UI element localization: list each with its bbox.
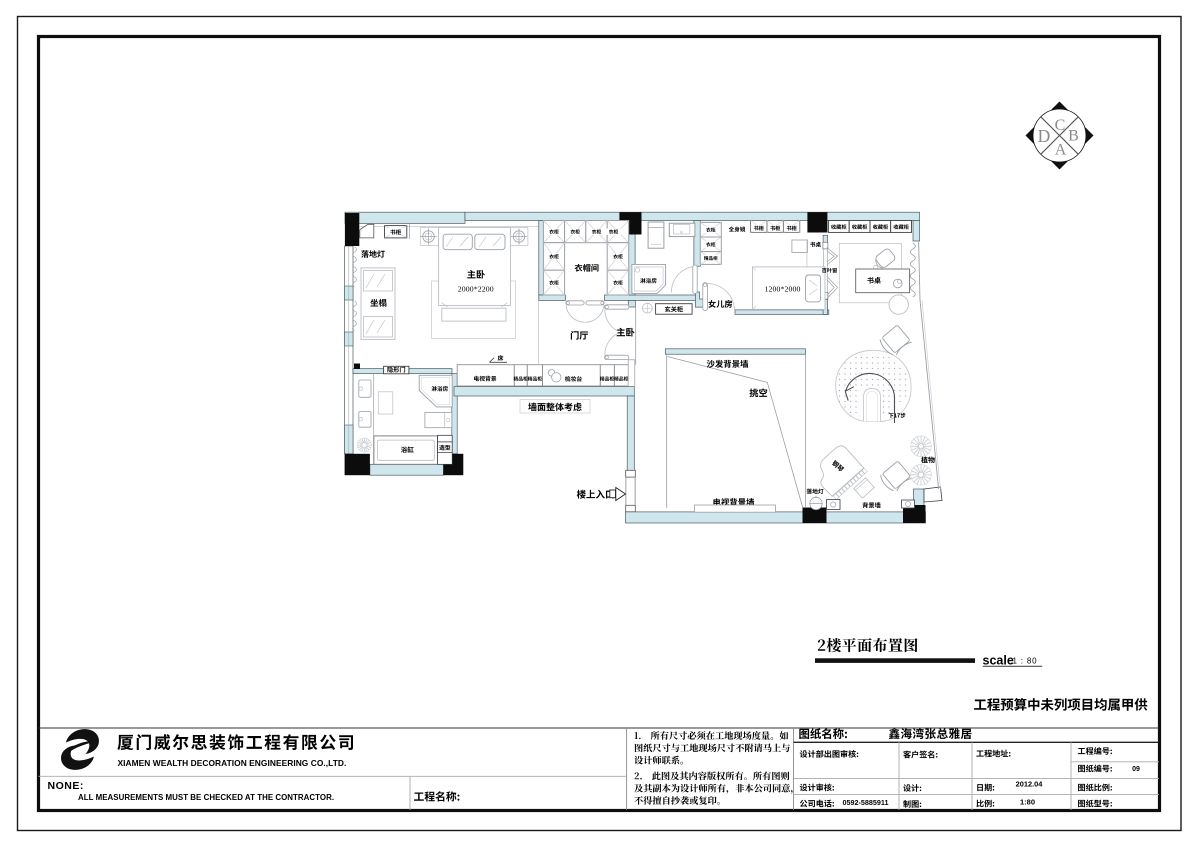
- svg-text:2012.04: 2012.04: [1016, 780, 1044, 789]
- svg-text:A: A: [1055, 142, 1067, 159]
- svg-text:ALL MEASUREMENTS MUST BE CHECK: ALL MEASUREMENTS MUST BE CHECKED AT THE …: [78, 793, 334, 802]
- svg-text:B: B: [1068, 128, 1079, 145]
- svg-text:09: 09: [1132, 766, 1140, 773]
- svg-text:scale: scale: [983, 654, 1014, 668]
- svg-text:0592-5885911: 0592-5885911: [843, 798, 889, 807]
- svg-text:1200*2000: 1200*2000: [765, 285, 801, 294]
- svg-text:D: D: [1038, 126, 1051, 146]
- svg-text:C: C: [1055, 117, 1066, 134]
- svg-text:2000*2200: 2000*2200: [458, 284, 494, 293]
- svg-text:1:80: 1:80: [1020, 798, 1035, 807]
- svg-text:XIAMEN WEALTH DECORATION ENGIN: XIAMEN WEALTH DECORATION ENGINEERING CO.…: [118, 758, 347, 768]
- svg-text:NONE:: NONE:: [48, 780, 84, 792]
- svg-text:1 : 80: 1 : 80: [1013, 657, 1038, 666]
